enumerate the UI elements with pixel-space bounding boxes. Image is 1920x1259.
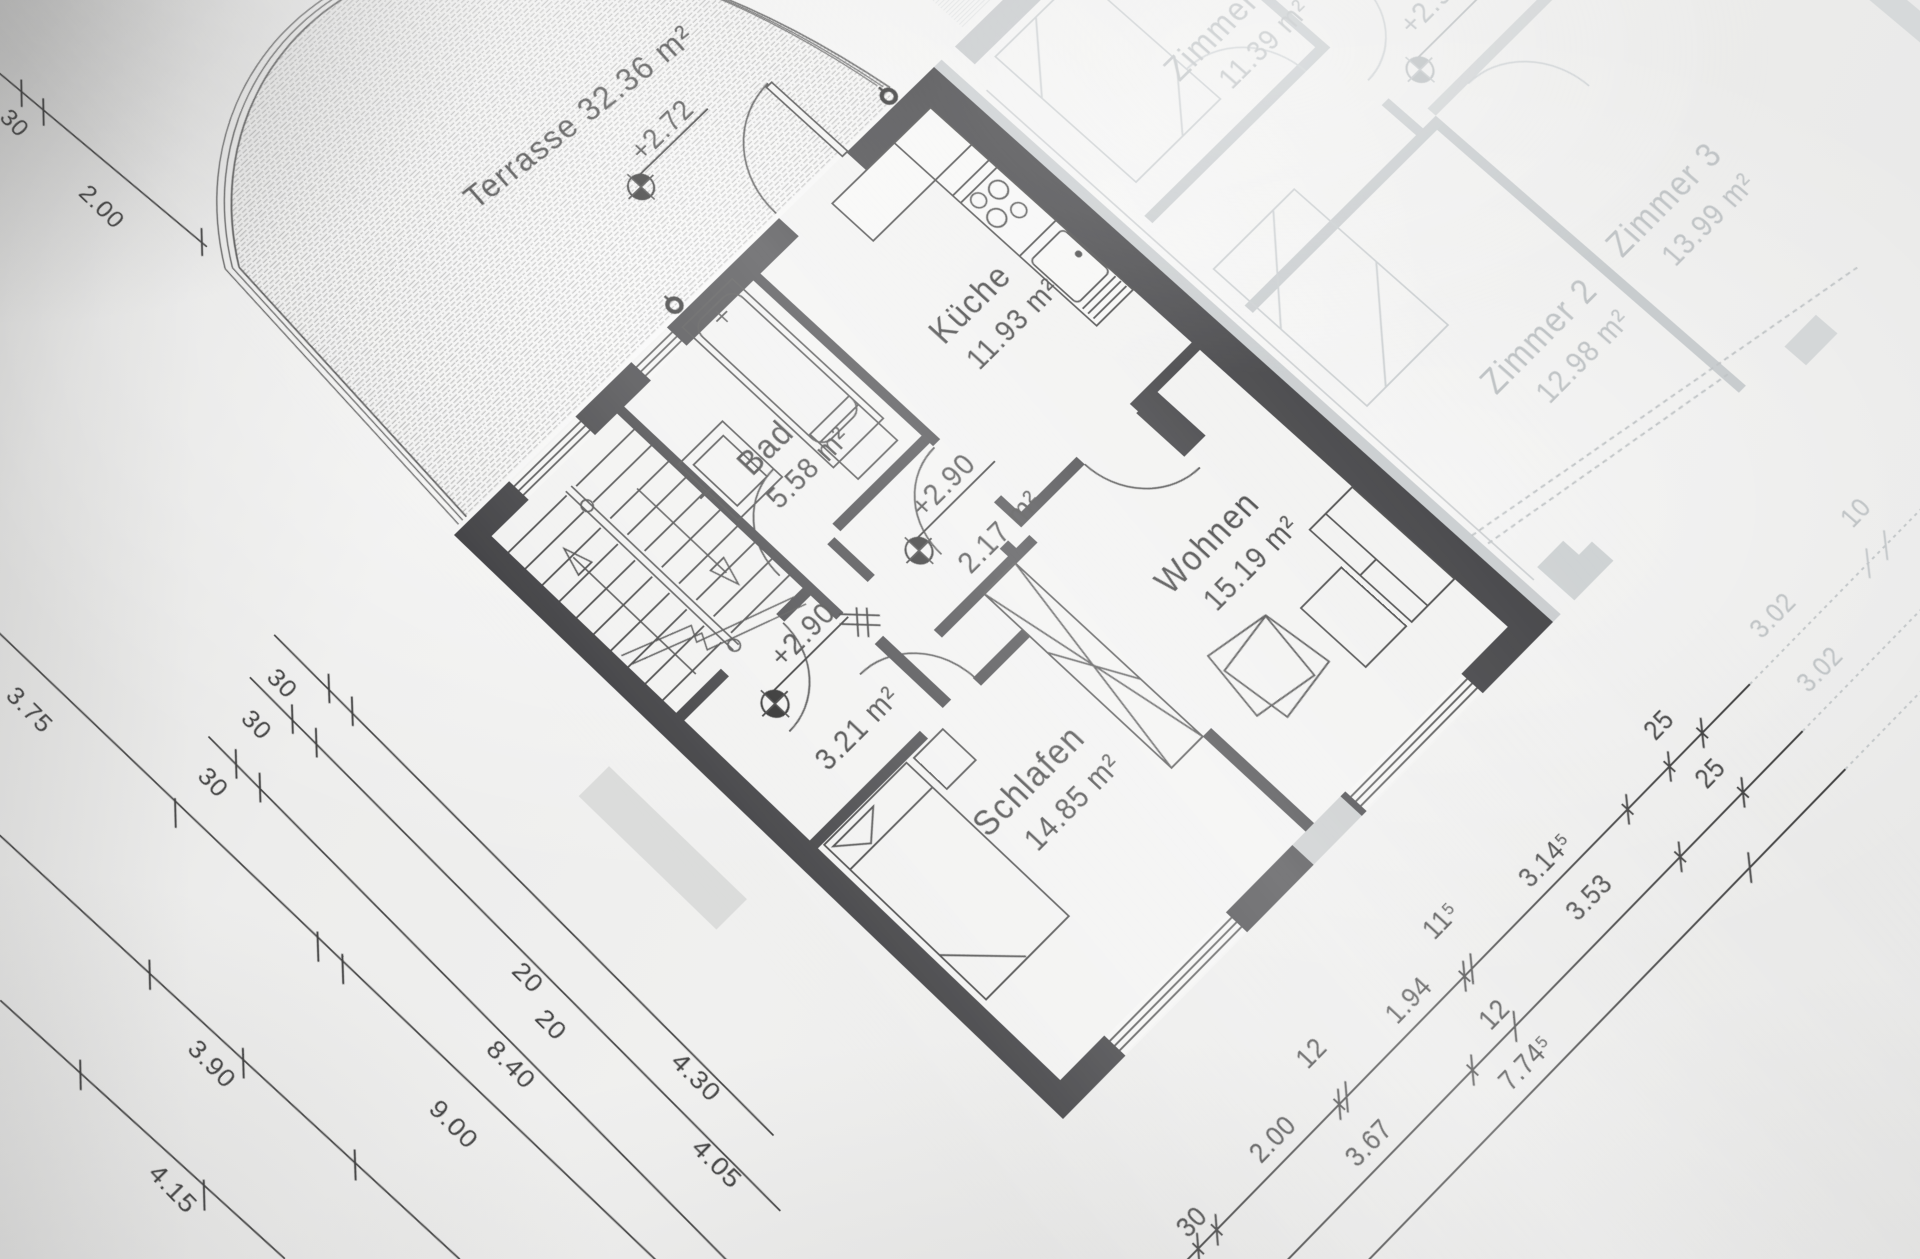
svg-text:1.94: 1.94: [1379, 971, 1439, 1030]
svg-text:30: 30: [235, 705, 277, 746]
svg-text:25: 25: [1689, 753, 1733, 795]
svg-text:3.02: 3.02: [1744, 587, 1803, 644]
svg-text:4.05: 4.05: [686, 1134, 747, 1195]
svg-text:30: 30: [0, 104, 34, 142]
svg-text:25: 25: [1637, 704, 1681, 746]
svg-text:10: 10: [1834, 492, 1878, 533]
svg-text:12: 12: [1473, 993, 1517, 1036]
svg-text:3.75: 3.75: [0, 682, 58, 739]
svg-text:30: 30: [261, 664, 303, 705]
svg-text:11⁵: 11⁵: [1416, 896, 1466, 945]
svg-text:2.00: 2.00: [73, 180, 129, 234]
svg-text:3.90: 3.90: [182, 1035, 241, 1095]
svg-text:12: 12: [1290, 1032, 1334, 1075]
svg-text:2.00: 2.00: [1243, 1110, 1303, 1170]
svg-text:3.53: 3.53: [1560, 868, 1620, 927]
svg-text:3.02: 3.02: [1790, 641, 1849, 699]
svg-text:20: 20: [529, 1004, 572, 1046]
svg-text:3.67: 3.67: [1339, 1113, 1399, 1173]
svg-text:30: 30: [192, 762, 234, 803]
svg-text:8.40: 8.40: [480, 1035, 540, 1095]
svg-text:20: 20: [506, 957, 549, 999]
svg-text:30: 30: [1170, 1200, 1214, 1244]
svg-text:+2.90: +2.90: [1392, 0, 1470, 40]
svg-text:4.15: 4.15: [143, 1159, 203, 1219]
svg-text:9.00: 9.00: [423, 1095, 483, 1155]
svg-text:3.14⁵: 3.14⁵: [1512, 827, 1580, 893]
